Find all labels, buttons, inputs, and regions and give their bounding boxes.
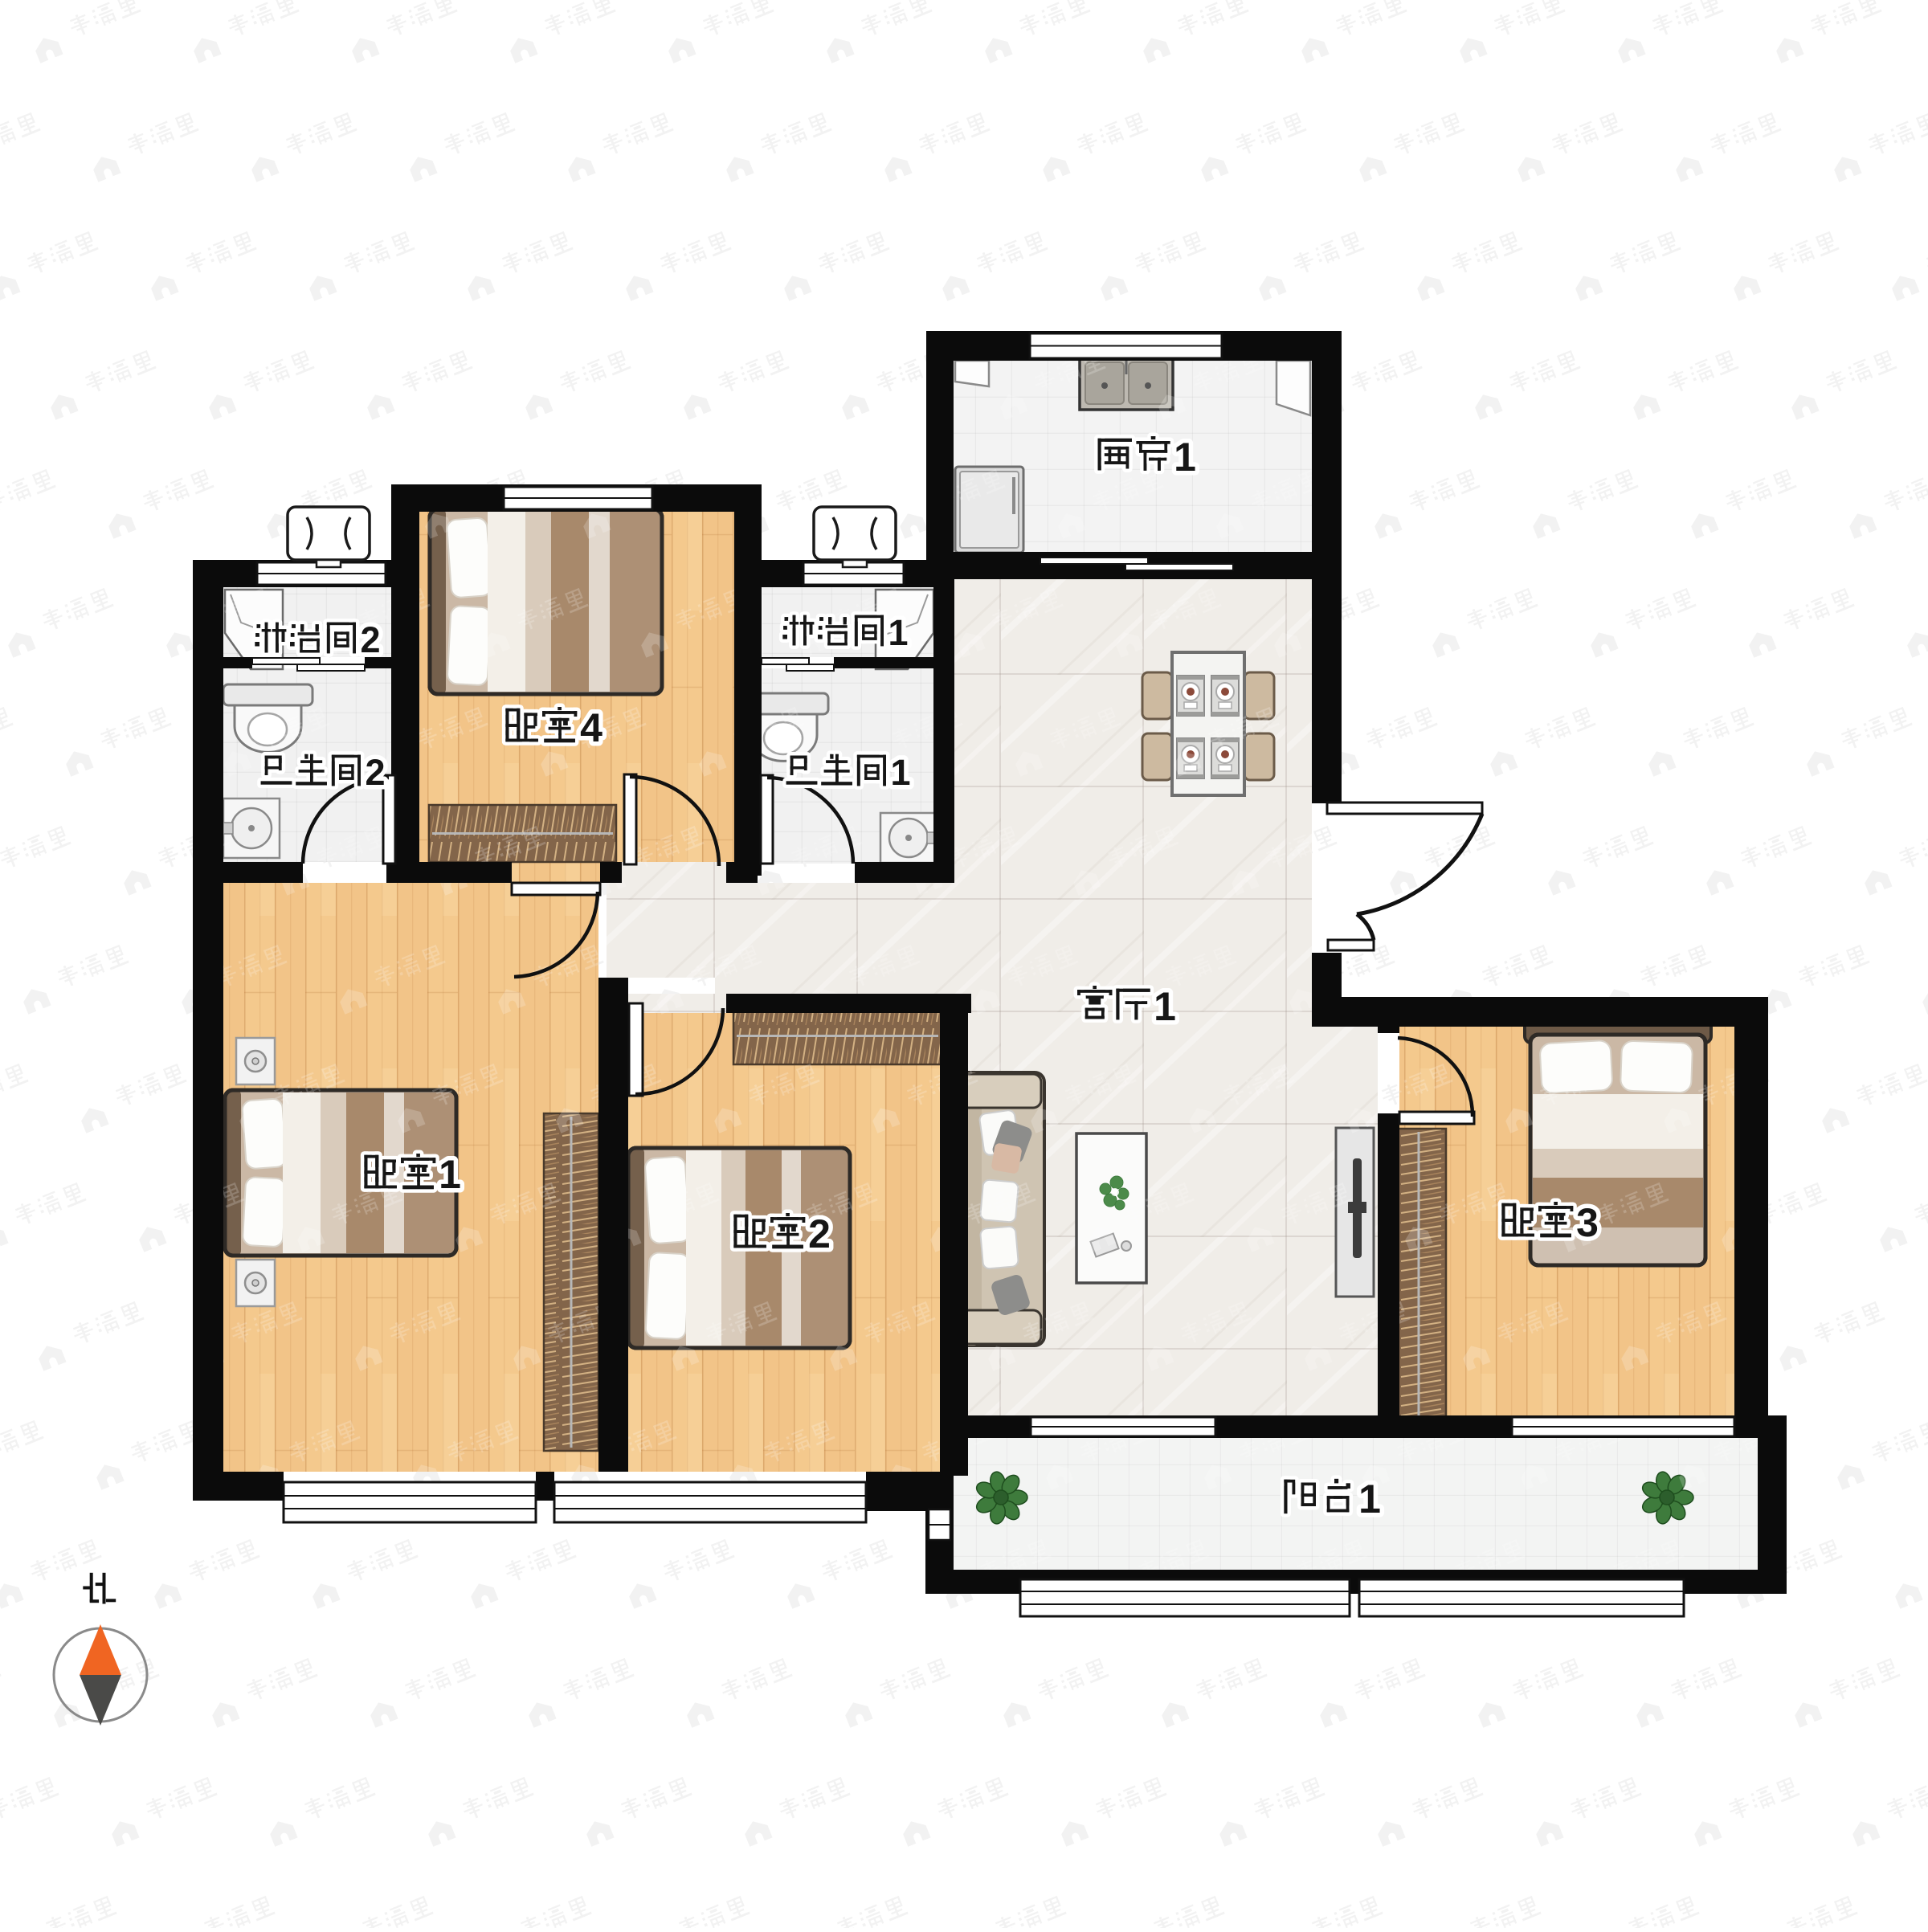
svg-text:3: 3 bbox=[1576, 1200, 1599, 1245]
svg-text:1: 1 bbox=[439, 1152, 461, 1197]
svg-text:2: 2 bbox=[365, 752, 385, 793]
svg-text:1: 1 bbox=[1358, 1477, 1381, 1522]
svg-text:2: 2 bbox=[360, 619, 380, 660]
svg-text:1: 1 bbox=[888, 612, 908, 653]
svg-text:1: 1 bbox=[890, 752, 910, 793]
svg-text:1: 1 bbox=[1154, 984, 1176, 1029]
svg-text:2: 2 bbox=[808, 1211, 831, 1256]
svg-text:4: 4 bbox=[580, 705, 602, 750]
svg-text:1: 1 bbox=[1174, 435, 1196, 480]
